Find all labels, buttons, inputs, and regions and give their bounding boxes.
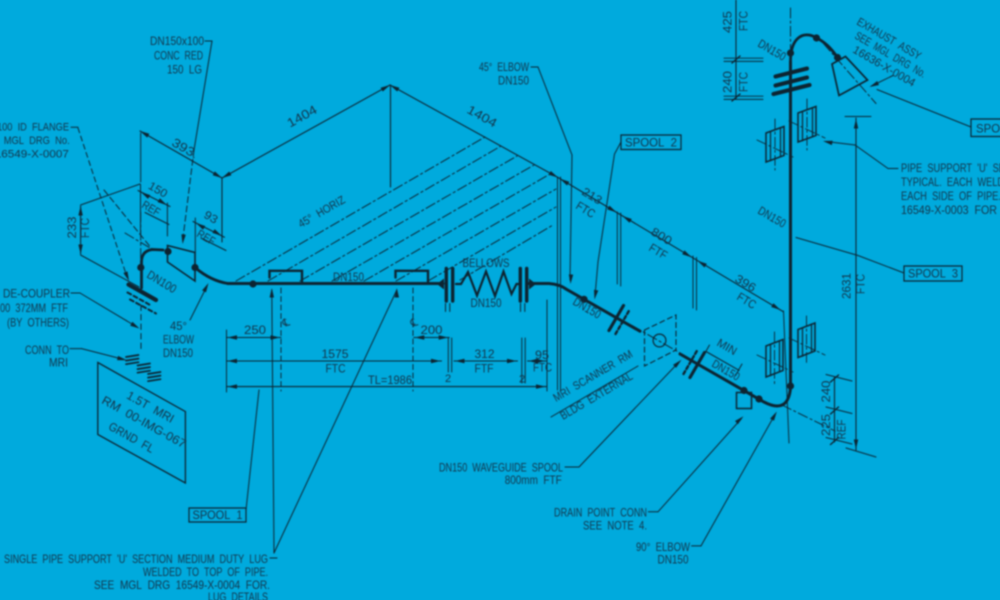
svg-text:250: 250 [244, 323, 266, 337]
svg-text:FTC: FTC [856, 274, 868, 294]
svg-text:ELBOW: ELBOW [163, 333, 194, 347]
svg-text:240: 240 [723, 71, 735, 93]
svg-text:45°: 45° [170, 319, 187, 333]
svg-text:FTC: FTC [739, 72, 751, 92]
svg-text:45° ELBOW: 45° ELBOW [479, 60, 529, 74]
svg-text:SPOOL 4: SPOOL 4 [976, 122, 1000, 136]
svg-text:2: 2 [519, 374, 525, 386]
svg-text:REF: REF [837, 420, 849, 440]
svg-text:DN150: DN150 [333, 270, 364, 284]
svg-text:16549-X-0003 FOR: 16549-X-0003 FOR [901, 203, 997, 217]
svg-text:240: 240 [821, 381, 833, 403]
svg-text:TYPICAL. EACH WELD: TYPICAL. EACH WELD [901, 175, 1000, 189]
svg-text:225: 225 [821, 414, 833, 436]
svg-text:800mm FTF: 800mm FTF [505, 473, 562, 487]
svg-text:FTC: FTC [533, 361, 552, 375]
svg-text:LUG DETAILS: LUG DETAILS [208, 590, 268, 600]
svg-text:2631: 2631 [842, 273, 854, 299]
svg-text:FTF: FTF [475, 362, 494, 376]
svg-text:425: 425 [723, 11, 735, 33]
svg-text:100 ID FLANGE: 100 ID FLANGE [0, 122, 69, 134]
svg-text:150 LG: 150 LG [167, 63, 202, 77]
svg-text:SPOOL 2: SPOOL 2 [625, 136, 677, 150]
svg-text:PIPE SUPPORT 'U' SE: PIPE SUPPORT 'U' SE [901, 161, 1000, 175]
svg-text:WELDED TO TOP OF PIPE.: WELDED TO TOP OF PIPE. [143, 565, 268, 579]
svg-text:EACH SIDE OF PIPE.: EACH SIDE OF PIPE. [901, 189, 1000, 203]
svg-text:1575: 1575 [322, 347, 349, 361]
svg-text:312: 312 [475, 347, 495, 361]
svg-text:233: 233 [67, 217, 79, 239]
svg-text:TL=1986: TL=1986 [368, 373, 412, 387]
svg-text:DN150: DN150 [658, 553, 689, 567]
svg-text:MGL DRG No.: MGL DRG No. [4, 135, 70, 147]
svg-text:BELLOWS: BELLOWS [463, 256, 510, 270]
svg-text:MRI: MRI [49, 356, 68, 370]
svg-text:2: 2 [445, 373, 451, 385]
svg-text:DN150: DN150 [163, 346, 193, 360]
svg-text:16549-X-0007: 16549-X-0007 [0, 149, 69, 161]
svg-text:00 372MM FTF: 00 372MM FTF [0, 301, 68, 315]
svg-text:SPOOL 3: SPOOL 3 [908, 267, 958, 281]
svg-text:FTC: FTC [739, 11, 751, 31]
svg-text:FTC: FTC [80, 218, 92, 238]
svg-text:PIPE DE-COUPLER: PIPE DE-COUPLER [0, 287, 70, 301]
svg-text:FTC: FTC [326, 362, 346, 376]
svg-text:CONC RED: CONC RED [154, 49, 203, 63]
svg-text:DN150: DN150 [471, 296, 502, 310]
svg-text:(BY OTHERS): (BY OTHERS) [7, 316, 69, 330]
svg-text:SPOOL 1: SPOOL 1 [193, 508, 243, 522]
svg-text:SINGLE PIPE SUPPORT 'U' SE: SINGLE PIPE SUPPORT 'U' SECTION MEDIUM D… [4, 552, 268, 566]
svg-text:SEE NOTE 4.: SEE NOTE 4. [583, 519, 647, 533]
svg-text:DRAIN POINT CONN: DRAIN POINT CONN [554, 506, 647, 520]
svg-text:DN150: DN150 [498, 74, 529, 88]
svg-text:200: 200 [421, 323, 443, 337]
svg-text:DN150x100: DN150x100 [150, 34, 204, 48]
